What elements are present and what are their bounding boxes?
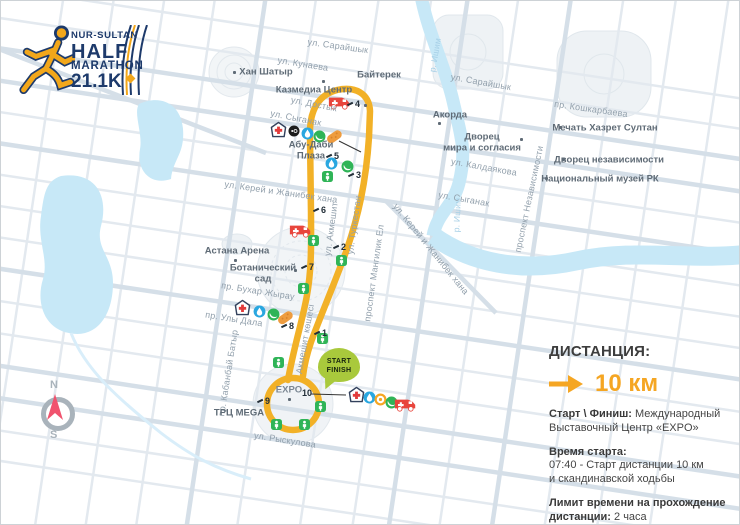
wc-icon xyxy=(271,419,282,430)
wc-icon xyxy=(315,401,326,412)
wc-icon xyxy=(273,357,284,368)
landmark-palace-independence: Дворец независимости xyxy=(554,154,664,165)
km-marker-1: 1 xyxy=(322,328,327,338)
fruit-station-icon xyxy=(268,309,280,321)
landmark-dot xyxy=(322,80,325,83)
wc-icon xyxy=(322,171,333,182)
landmark-dot xyxy=(559,126,562,129)
distance-arrow-icon xyxy=(549,375,583,393)
wc-icon xyxy=(308,235,319,246)
km-marker-10: 10 xyxy=(302,388,312,398)
landmark-national-museum: Национальный музей РК xyxy=(541,173,658,184)
water-station-icon xyxy=(364,392,376,404)
km-marker-9: 9 xyxy=(265,396,270,406)
panel-title: ДИСТАНЦИЯ: xyxy=(549,343,737,360)
water-station-icon xyxy=(254,306,266,318)
start-label: START xyxy=(327,358,351,365)
start-finish-info: Старт \ Финиш: Международный Выставочный… xyxy=(549,408,737,436)
landmark-dot xyxy=(233,71,236,74)
km-marker-8: 8 xyxy=(289,321,294,331)
landmark-palace-peace: Дворецмира и согласия xyxy=(443,132,521,155)
isotonic-station-icon xyxy=(375,394,387,406)
water-station-icon xyxy=(302,128,314,140)
landmark-mega-mall: ТРЦ MEGA xyxy=(214,407,264,418)
logo-line-4: 21.1K xyxy=(71,72,122,91)
distance-value: 10 км xyxy=(595,370,658,398)
logo-line-2: HALF xyxy=(71,42,128,62)
landmark-abu-dhabi-plaza: Абу-ДабиПлаза xyxy=(289,140,334,163)
fruit-station-icon xyxy=(342,161,354,173)
logo-line-1: NUR-SULTAN xyxy=(71,31,138,41)
landmark-dot xyxy=(294,269,297,272)
landmark-dot xyxy=(520,138,523,141)
start-finish-bubble: START FINISH xyxy=(318,348,360,382)
medical-point-icon xyxy=(349,387,363,401)
landmark-kazmedia: Казмедиа Центр xyxy=(276,84,352,95)
landmark-dot xyxy=(288,398,291,401)
finish-label: FINISH xyxy=(327,367,352,374)
landmark-dot xyxy=(364,104,367,107)
km-marker-3: 3 xyxy=(356,170,361,180)
compass-south-label: S xyxy=(50,429,110,441)
race-info-panel: ДИСТАНЦИЯ: 10 км Старт \ Финиш: Междунар… xyxy=(549,343,737,525)
race-map-page: ул. Сарайшык ул. Кунаева ул. Достык ул. … xyxy=(0,0,740,525)
landmark-dot xyxy=(562,158,565,161)
landmark-mosque: Мечать Хазрет Султан xyxy=(552,122,657,133)
compass: N S xyxy=(27,381,87,447)
landmark-dot xyxy=(545,177,548,180)
km-marker-6: 6 xyxy=(321,205,326,215)
km-marker-5: 5 xyxy=(334,151,339,161)
landmark-baiterek: Байтерек xyxy=(357,69,401,80)
km-marker-7: 7 xyxy=(309,262,314,272)
compass-north-label: N xyxy=(50,379,110,391)
km-marker-4: 4 xyxy=(355,99,360,109)
landmark-astana-arena: Астана Арена xyxy=(205,245,270,256)
station-badge-icon xyxy=(289,126,300,137)
runner-icon xyxy=(19,23,75,101)
wc-icon xyxy=(336,255,347,266)
start-time-info: Время старта: 07:40 - Старт дистанции 10… xyxy=(549,446,737,487)
landmark-dot xyxy=(234,259,237,262)
wc-icon xyxy=(298,283,309,294)
time-limit-info: Лимит времени на прохождение дистанции: … xyxy=(549,497,737,525)
landmark-dot xyxy=(438,122,441,125)
wc-icon xyxy=(299,419,310,430)
landmark-expo: EXPO xyxy=(276,384,302,395)
event-logo: NUR-SULTAN HALF MARATHON 21.1K xyxy=(11,9,171,104)
km-marker-2: 2 xyxy=(341,242,346,252)
landmark-botanical-garden: Ботаническийсад xyxy=(230,263,296,286)
river-label: р. Ишим xyxy=(451,198,463,233)
compass-arrow-icon xyxy=(46,394,64,422)
landmark-khan-shatyr: Хан Шатыр xyxy=(239,66,292,77)
landmark-akorda: Акорда xyxy=(433,109,467,120)
